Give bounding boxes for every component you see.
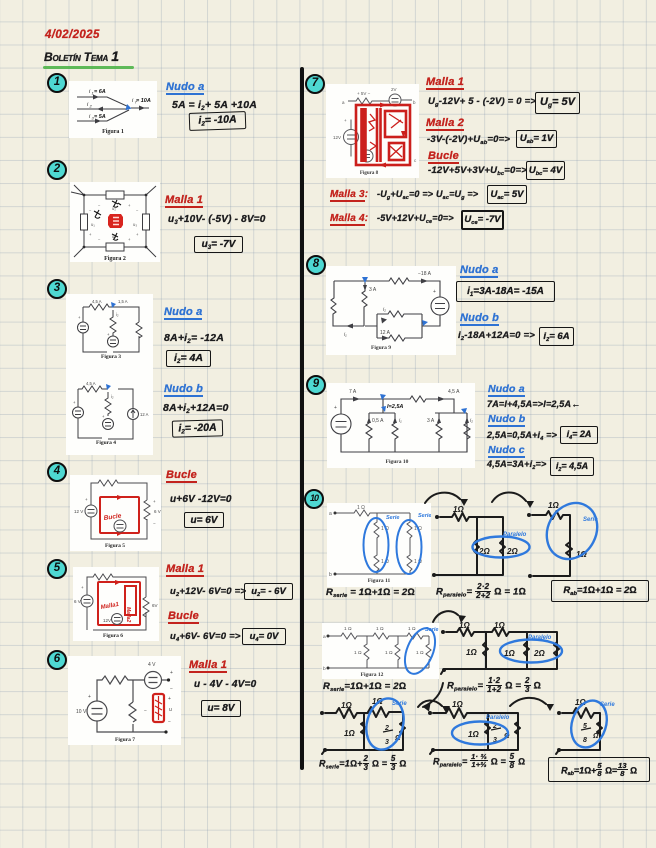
svg-text:= 6A: = 6A — [94, 89, 106, 95]
svg-text:+: + — [81, 585, 84, 590]
svg-text:3 A: 3 A — [427, 418, 435, 424]
svg-text:4,5 A: 4,5 A — [448, 389, 460, 395]
svg-text:−: − — [98, 237, 101, 242]
svg-text:Figura 8: Figura 8 — [360, 171, 379, 176]
svg-text:+: + — [170, 670, 173, 676]
svg-text:+: + — [136, 232, 139, 237]
svg-text:+: + — [334, 405, 337, 411]
svg-text:1Ω: 1Ω — [459, 621, 470, 630]
svg-text:−: − — [170, 686, 173, 692]
svg-text:Serie: Serie — [583, 517, 598, 523]
svg-text:i₁: i₁ — [399, 418, 402, 424]
svg-text:Serie: Serie — [600, 702, 615, 708]
svg-text:Malla2: Malla2 — [125, 607, 131, 623]
svg-text:10 V: 10 V — [76, 709, 87, 715]
svg-text:12 A: 12 A — [140, 412, 149, 417]
svg-text:4,5 A: 4,5 A — [92, 299, 102, 304]
svg-text:= 5A: = 5A — [94, 114, 106, 120]
svg-text:i₂: i₂ — [470, 418, 473, 424]
svg-text:1Ω: 1Ω — [468, 730, 479, 739]
svg-text:Serie: Serie — [392, 701, 407, 707]
svg-text:12V: 12V — [333, 135, 341, 140]
svg-text:6 V: 6 V — [154, 509, 161, 514]
svg-text:12V: 12V — [103, 618, 111, 623]
svg-text:1,5 A: 1,5 A — [118, 299, 128, 304]
svg-text:+: + — [78, 315, 81, 320]
svg-text:+: + — [168, 696, 171, 702]
svg-text:−18 A: −18 A — [418, 271, 432, 277]
svg-text:+: + — [102, 414, 105, 419]
svg-text:Figura 10: Figura 10 — [386, 459, 409, 465]
svg-text:−: − — [98, 203, 101, 208]
svg-text:i₁: i₁ — [344, 332, 347, 338]
svg-text:= 10A: = 10A — [136, 98, 151, 104]
svg-text:+: + — [85, 497, 88, 502]
svg-text:a: a — [342, 100, 345, 105]
svg-text:Figura 4: Figura 4 — [96, 440, 116, 446]
svg-text:−: − — [136, 208, 139, 213]
svg-text:1Ω: 1Ω — [548, 501, 559, 510]
svg-text:+: + — [73, 400, 76, 405]
svg-text:6V: 6V — [152, 603, 158, 608]
svg-text:Figura 7: Figura 7 — [115, 737, 135, 743]
svg-text:1Ω: 1Ω — [466, 648, 477, 657]
svg-text:u: u — [169, 707, 172, 713]
svg-text:+: + — [128, 237, 131, 242]
svg-text:4 V: 4 V — [148, 662, 156, 668]
svg-text:3 A: 3 A — [369, 287, 377, 293]
svg-text:12 V: 12 V — [74, 509, 83, 514]
svg-text:1Ω: 1Ω — [494, 621, 505, 630]
svg-text:i₂: i₂ — [116, 312, 119, 317]
svg-text:Figura 5: Figura 5 — [105, 543, 125, 549]
svg-text:7 A: 7 A — [349, 389, 357, 395]
svg-text:0,5 A: 0,5 A — [372, 418, 384, 424]
svg-text:2: 2 — [89, 104, 93, 109]
svg-text:6 V: 6 V — [74, 599, 81, 604]
svg-text:Ω: Ω — [592, 733, 599, 740]
svg-text:+: + — [107, 332, 110, 337]
svg-text:Figura 2: Figura 2 — [104, 256, 126, 262]
svg-text:2V: 2V — [391, 87, 397, 92]
svg-text:1Ω: 1Ω — [341, 701, 352, 710]
svg-text:c: c — [414, 158, 417, 163]
svg-text:+: + — [89, 232, 92, 237]
svg-text:8: 8 — [583, 737, 587, 744]
svg-text:−: − — [168, 719, 171, 725]
svg-text:1Ω: 1Ω — [453, 505, 464, 514]
svg-text:−: − — [89, 208, 92, 213]
svg-text:+: + — [433, 289, 436, 295]
svg-text:4,5 A: 4,5 A — [86, 381, 96, 386]
svg-text:+: + — [128, 203, 131, 208]
svg-text:+: + — [344, 118, 347, 123]
svg-text:1Ω: 1Ω — [452, 700, 463, 709]
svg-text:i₂: i₂ — [111, 394, 114, 399]
svg-text:−: − — [153, 521, 156, 526]
svg-text:1Ω: 1Ω — [344, 729, 355, 738]
svg-text:u₁: u₁ — [91, 222, 95, 227]
svg-text:−: − — [144, 708, 147, 714]
svg-text:+: + — [88, 694, 91, 700]
svg-text:3: 3 — [385, 739, 389, 746]
svg-text:Figura 6: Figura 6 — [103, 633, 123, 639]
svg-text:+: + — [153, 499, 156, 504]
svg-text:b: b — [413, 100, 416, 105]
svg-text:Figura 9: Figura 9 — [371, 345, 391, 351]
svg-text:12 A: 12 A — [380, 330, 391, 336]
svg-text:2Ω: 2Ω — [533, 649, 545, 658]
svg-text:Malla1: Malla1 — [100, 602, 120, 611]
svg-text:+ 5V −: + 5V − — [357, 91, 371, 96]
svg-text:i₂: i₂ — [383, 307, 386, 313]
svg-text:I=2,5A: I=2,5A — [387, 404, 403, 410]
svg-text:Paralelo: Paralelo — [486, 715, 510, 721]
svg-text:Paralelo: Paralelo — [503, 532, 527, 538]
svg-text:Figura 1: Figura 1 — [102, 129, 124, 135]
svg-text:Figura 3: Figura 3 — [101, 354, 121, 360]
svg-text:u₃: u₃ — [133, 222, 137, 227]
svg-text:Paralelo: Paralelo — [528, 635, 552, 641]
